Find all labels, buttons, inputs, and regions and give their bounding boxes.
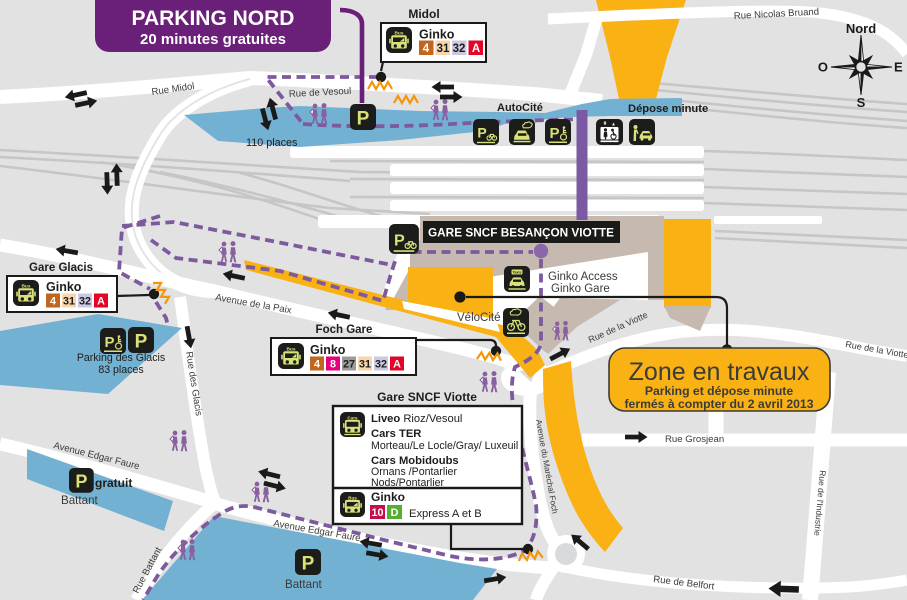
svg-text:A: A: [472, 43, 480, 55]
svg-text:110 places: 110 places: [246, 137, 298, 149]
svg-text:Ginko: Ginko: [371, 490, 405, 504]
svg-text:S: S: [857, 95, 866, 110]
svg-text:Morteau/Le Locle/Gray/ Luxeuil: Morteau/Le Locle/Gray/ Luxeuil: [371, 440, 518, 452]
svg-text:4: 4: [423, 43, 430, 55]
svg-text:D: D: [391, 507, 399, 519]
svg-text:fermés à compter du 2 avril 20: fermés à compter du 2 avril 2013: [624, 397, 813, 411]
svg-text:gratuit: gratuit: [95, 476, 132, 490]
svg-text:27: 27: [343, 359, 355, 371]
svg-text:Ginko Gare: Ginko Gare: [551, 283, 610, 295]
svg-text:PARKING NORD: PARKING NORD: [132, 7, 295, 30]
svg-text:GARE SNCF BESANÇON VIOTTE: GARE SNCF BESANÇON VIOTTE: [428, 226, 614, 240]
svg-text:Battant: Battant: [285, 578, 323, 591]
svg-text:Midol: Midol: [408, 7, 439, 21]
svg-text:VéloCité: VéloCité: [457, 312, 500, 324]
svg-text:Dépose minute: Dépose minute: [628, 103, 708, 115]
svg-text:Ginko Access: Ginko Access: [548, 271, 618, 283]
svg-text:Gare Glacis: Gare Glacis: [29, 262, 93, 274]
svg-text:83 places: 83 places: [98, 364, 143, 376]
svg-text:Battant: Battant: [61, 494, 99, 507]
svg-text:Express A et B: Express A et B: [409, 508, 482, 520]
svg-text:4: 4: [50, 296, 56, 308]
svg-text:32: 32: [375, 359, 387, 371]
svg-text:E: E: [894, 60, 903, 75]
svg-text:O: O: [818, 60, 828, 75]
svg-text:Liveo Rioz/Vesoul: Liveo Rioz/Vesoul: [371, 413, 462, 425]
svg-text:Parking et dépose minute: Parking et dépose minute: [645, 384, 794, 398]
svg-text:31: 31: [437, 43, 450, 55]
svg-text:Taxis: Taxis: [513, 270, 522, 274]
svg-text:Ginko: Ginko: [419, 28, 455, 42]
svg-text:A: A: [97, 296, 105, 308]
svg-text:Ginko: Ginko: [46, 280, 82, 294]
svg-text:A: A: [393, 359, 401, 371]
svg-text:AutoCité: AutoCité: [497, 102, 543, 114]
svg-text:32: 32: [79, 296, 91, 308]
svg-text:Gare SNCF Viotte: Gare SNCF Viotte: [377, 390, 477, 404]
svg-text:Rue Grosjean: Rue Grosjean: [665, 434, 724, 445]
svg-text:Parking des Glacis: Parking des Glacis: [77, 352, 165, 364]
svg-text:Ginko: Ginko: [310, 343, 346, 357]
svg-text:Cars TER: Cars TER: [371, 428, 421, 440]
svg-text:31: 31: [359, 359, 371, 371]
svg-text:32: 32: [453, 43, 466, 55]
svg-text:Zone en travaux: Zone en travaux: [629, 358, 810, 386]
svg-text:Nods/Pontarlier: Nods/Pontarlier: [371, 477, 444, 489]
svg-text:10: 10: [371, 507, 383, 519]
svg-text:31: 31: [63, 296, 75, 308]
svg-text:Foch Gare: Foch Gare: [316, 324, 373, 336]
svg-text:20 minutes gratuites: 20 minutes gratuites: [140, 31, 286, 48]
svg-text:4: 4: [314, 359, 320, 371]
svg-text:8: 8: [330, 359, 336, 371]
svg-text:Nord: Nord: [846, 21, 876, 36]
